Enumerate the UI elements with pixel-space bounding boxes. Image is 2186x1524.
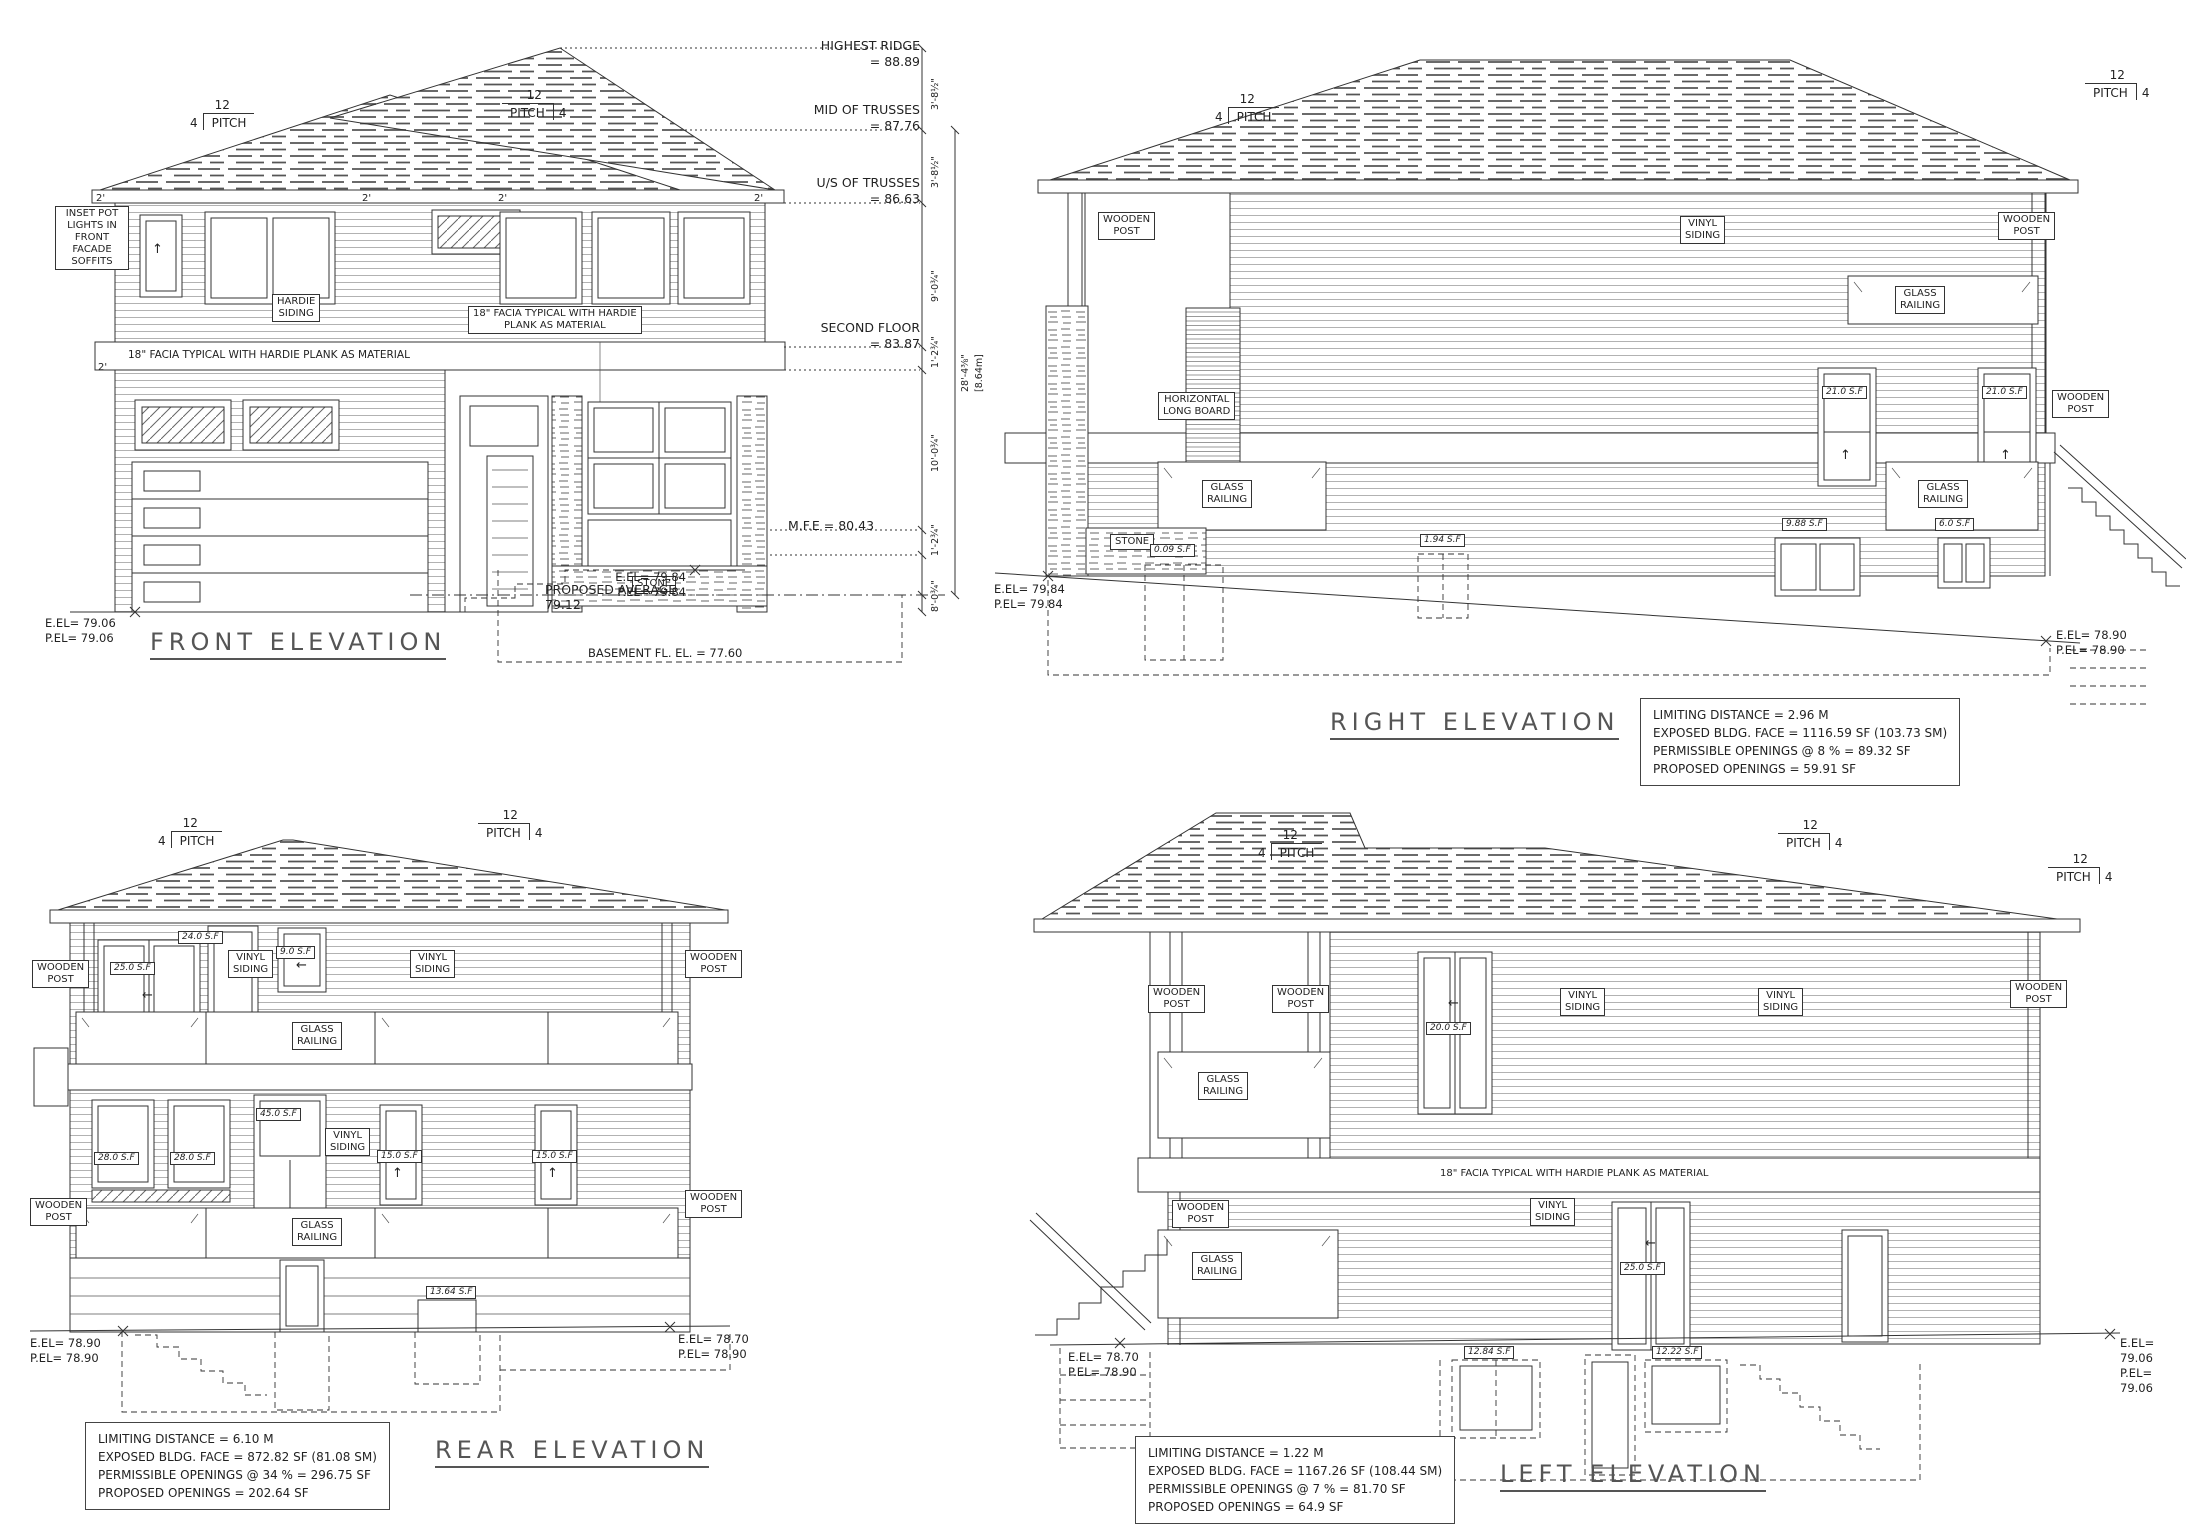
window-area-label: 1.94 S.F (1420, 534, 1465, 547)
level-us-trusses: U/S OF TRUSSES = 86.63 (788, 175, 920, 206)
dim-g: 8'-0¾" (930, 580, 941, 612)
vinyl-siding-label: VINYL SIDING (1758, 988, 1803, 1016)
architectural-elevations-sheet: { "labels": { "wooden_post": "WOODEN\nPO… (0, 0, 2186, 1512)
window-area-label: 13.64 S.F (426, 1286, 476, 1299)
wooden-post-label: WOODEN POST (2052, 390, 2109, 418)
window-area-label: 9.0 S.F (276, 946, 315, 959)
dim-e: 10'-0¾" (930, 434, 941, 472)
wooden-post-label: WOODEN POST (32, 960, 89, 988)
window-area-label: 28.0 S.F (170, 1152, 215, 1165)
right-elevation-title: RIGHT ELEVATION (1330, 708, 1619, 740)
dim-2ft: 2' (96, 193, 105, 204)
window-area-label: 6.0 S.F (1935, 518, 1974, 531)
wooden-post-label: WOODEN POST (1148, 985, 1205, 1013)
stone-label: STONE (1110, 534, 1154, 550)
dim-overall-m: [8.64m] (974, 354, 985, 392)
window-swing-arrow: ↑ (547, 1166, 558, 1181)
grade-elevation-left: E.EL= 78.90 P.EL= 78.90 (30, 1336, 101, 1366)
window-area-label: 15.0 S.F (532, 1150, 577, 1163)
vinyl-siding-label: VINYL SIDING (228, 950, 273, 978)
front-pitch-right: 12PITCH4 (502, 88, 566, 120)
window-area-label: 15.0 S.F (377, 1150, 422, 1163)
right-elevation: 124PITCH 12PITCH4 WOODEN POST VINYL SIDI… (990, 20, 2186, 780)
left-elevation-linework (1020, 800, 2186, 1512)
level-mid-trusses: MID OF TRUSSES = 87.76 (788, 102, 920, 133)
dim-a: 3'-8½" (930, 78, 941, 110)
wooden-post-label: WOODEN POST (30, 1198, 87, 1226)
left-elevation: 124PITCH 12PITCH4 12PITCH4 WOODEN POST W… (1020, 800, 2186, 1512)
grade-elevation-left: E.EL= 78.70 P.EL= 78.90 (1068, 1350, 1139, 1380)
wooden-post-label: WOODEN POST (685, 1190, 742, 1218)
window-area-label: 0.09 S.F (1150, 544, 1195, 557)
window-area-label: 21.0 S.F (1822, 386, 1867, 399)
glass-railing-label: GLASS RAILING (1202, 480, 1252, 508)
rear-pitch-left: 124PITCH (158, 816, 222, 848)
left-pitch-a: 124PITCH (1258, 828, 1322, 860)
dim-2ft: 2' (754, 193, 763, 204)
left-elevation-notes: LIMITING DISTANCE = 1.22 M EXPOSED BLDG.… (1135, 1436, 1455, 1524)
window-area-label: 24.0 S.F (178, 931, 223, 944)
facia-note: 18" FACIA TYPICAL WITH HARDIE PLANK AS M… (128, 349, 410, 361)
window-area-label: 12.84 S.F (1464, 1346, 1514, 1359)
wooden-post-label: WOODEN POST (1172, 1200, 1229, 1228)
grade-elevation-right: E.EL= 79.06 P.EL= 79.06 (2120, 1336, 2186, 1396)
window-swing-arrow: ↑ (2000, 448, 2011, 463)
wooden-post-label: WOODEN POST (1098, 212, 1155, 240)
facia-note-boxed: 18" FACIA TYPICAL WITH HARDIE PLANK AS M… (468, 306, 642, 334)
dim-2ft: 2' (362, 193, 371, 204)
dim-c: 9'-0¾" (930, 270, 941, 302)
right-pitch-right: 12PITCH4 (2085, 68, 2149, 100)
dim-2ft: 2' (98, 362, 107, 373)
window-area-label: 25.0 S.F (110, 962, 155, 975)
vinyl-siding-label: VINYL SIDING (1560, 988, 1605, 1016)
right-pitch-left: 124PITCH (1215, 92, 1279, 124)
window-area-label: 25.0 S.F (1620, 1262, 1665, 1275)
left-elevation-title: LEFT ELEVATION (1500, 1460, 1766, 1492)
window-area-label: 12.22 S.F (1652, 1346, 1702, 1359)
vinyl-siding-label: VINYL SIDING (325, 1128, 370, 1156)
window-swing-arrow: ↑ (1840, 448, 1851, 463)
inset-pot-lights-note: INSET POT LIGHTS IN FRONT FACADE SOFFITS (55, 206, 129, 270)
front-pitch-left: 124PITCH (190, 98, 254, 130)
level-second-floor: SECOND FLOOR = 83.87 (788, 320, 920, 351)
right-elevation-notes: LIMITING DISTANCE = 2.96 M EXPOSED BLDG.… (1640, 698, 1960, 786)
glass-railing-label: GLASS RAILING (1192, 1252, 1242, 1280)
dim-f: 1'-2¾" (930, 524, 941, 556)
rear-elevation: 124PITCH 12PITCH4 WOODEN POST WOODEN POS… (30, 800, 780, 1512)
level-highest-ridge: HIGHEST RIDGE = 88.89 (788, 38, 920, 69)
window-area-label: 21.0 S.F (1982, 386, 2027, 399)
level-mfe: M.F.E = 80.43 (788, 518, 874, 533)
grade-elevation-right: E.EL= 79.84 P.EL= 79.84 (600, 570, 686, 600)
front-elevation: 124PITCH 12PITCH4 INSET POT LIGHTS IN FR… (40, 10, 990, 710)
grade-elevation-right: E.EL= 78.70 P.EL= 78.90 (678, 1332, 749, 1362)
window-swing-arrow: ↑ (152, 242, 163, 257)
vinyl-siding-label: VINYL SIDING (1680, 216, 1725, 244)
window-area-label: 45.0 S.F (256, 1108, 301, 1121)
dim-2ft: 2' (498, 193, 507, 204)
vinyl-siding-label: VINYL SIDING (410, 950, 455, 978)
window-area-label: 20.0 S.F (1426, 1022, 1471, 1035)
door-slide-arrow: ← (1448, 996, 1459, 1011)
facia-note: 18" FACIA TYPICAL WITH HARDIE PLANK AS M… (1440, 1168, 1709, 1179)
rear-elevation-notes: LIMITING DISTANCE = 6.10 M EXPOSED BLDG.… (85, 1422, 390, 1510)
dim-overall: 28'-4⅜" (960, 354, 971, 392)
rear-elevation-title: REAR ELEVATION (435, 1436, 709, 1468)
door-slide-arrow: ← (1645, 1236, 1656, 1251)
glass-railing-label: GLASS RAILING (1895, 286, 1945, 314)
window-swing-arrow: ↑ (392, 1166, 403, 1181)
glass-railing-label: GLASS RAILING (292, 1022, 342, 1050)
window-area-label: 28.0 S.F (94, 1152, 139, 1165)
grade-elevation-left: E.EL= 79.84 P.EL= 79.84 (994, 582, 1065, 612)
wooden-post-label: WOODEN POST (2010, 980, 2067, 1008)
dim-b: 3'-8½" (930, 156, 941, 188)
wooden-post-label: WOODEN POST (1272, 985, 1329, 1013)
door-slide-arrow: ← (296, 958, 307, 973)
grade-elevation-right: E.EL= 78.90 P.EL= 78.90 (2056, 628, 2127, 658)
window-area-label: 9.88 S.F (1782, 518, 1827, 531)
grade-elevation-left: E.EL= 79.06 P.EL= 79.06 (45, 616, 116, 646)
glass-railing-label: GLASS RAILING (1918, 480, 1968, 508)
rear-pitch-right: 12PITCH4 (478, 808, 542, 840)
glass-railing-label: GLASS RAILING (292, 1218, 342, 1246)
glass-railing-label: GLASS RAILING (1198, 1072, 1248, 1100)
level-basement: BASEMENT FL. EL. = 77.60 (588, 646, 742, 660)
left-pitch-b: 12PITCH4 (1778, 818, 1842, 850)
wooden-post-label: WOODEN POST (1998, 212, 2055, 240)
horizontal-long-board-label: HORIZONTAL LONG BOARD (1158, 392, 1235, 420)
front-elevation-title: FRONT ELEVATION (150, 628, 446, 660)
door-slide-arrow: ← (142, 988, 153, 1003)
wooden-post-label: WOODEN POST (685, 950, 742, 978)
dim-d: 1'-2¾" (930, 336, 941, 368)
left-pitch-c: 12PITCH4 (2048, 852, 2112, 884)
hardie-siding-label: HARDIE SIDING (272, 294, 320, 322)
vinyl-siding-label: VINYL SIDING (1530, 1198, 1575, 1226)
